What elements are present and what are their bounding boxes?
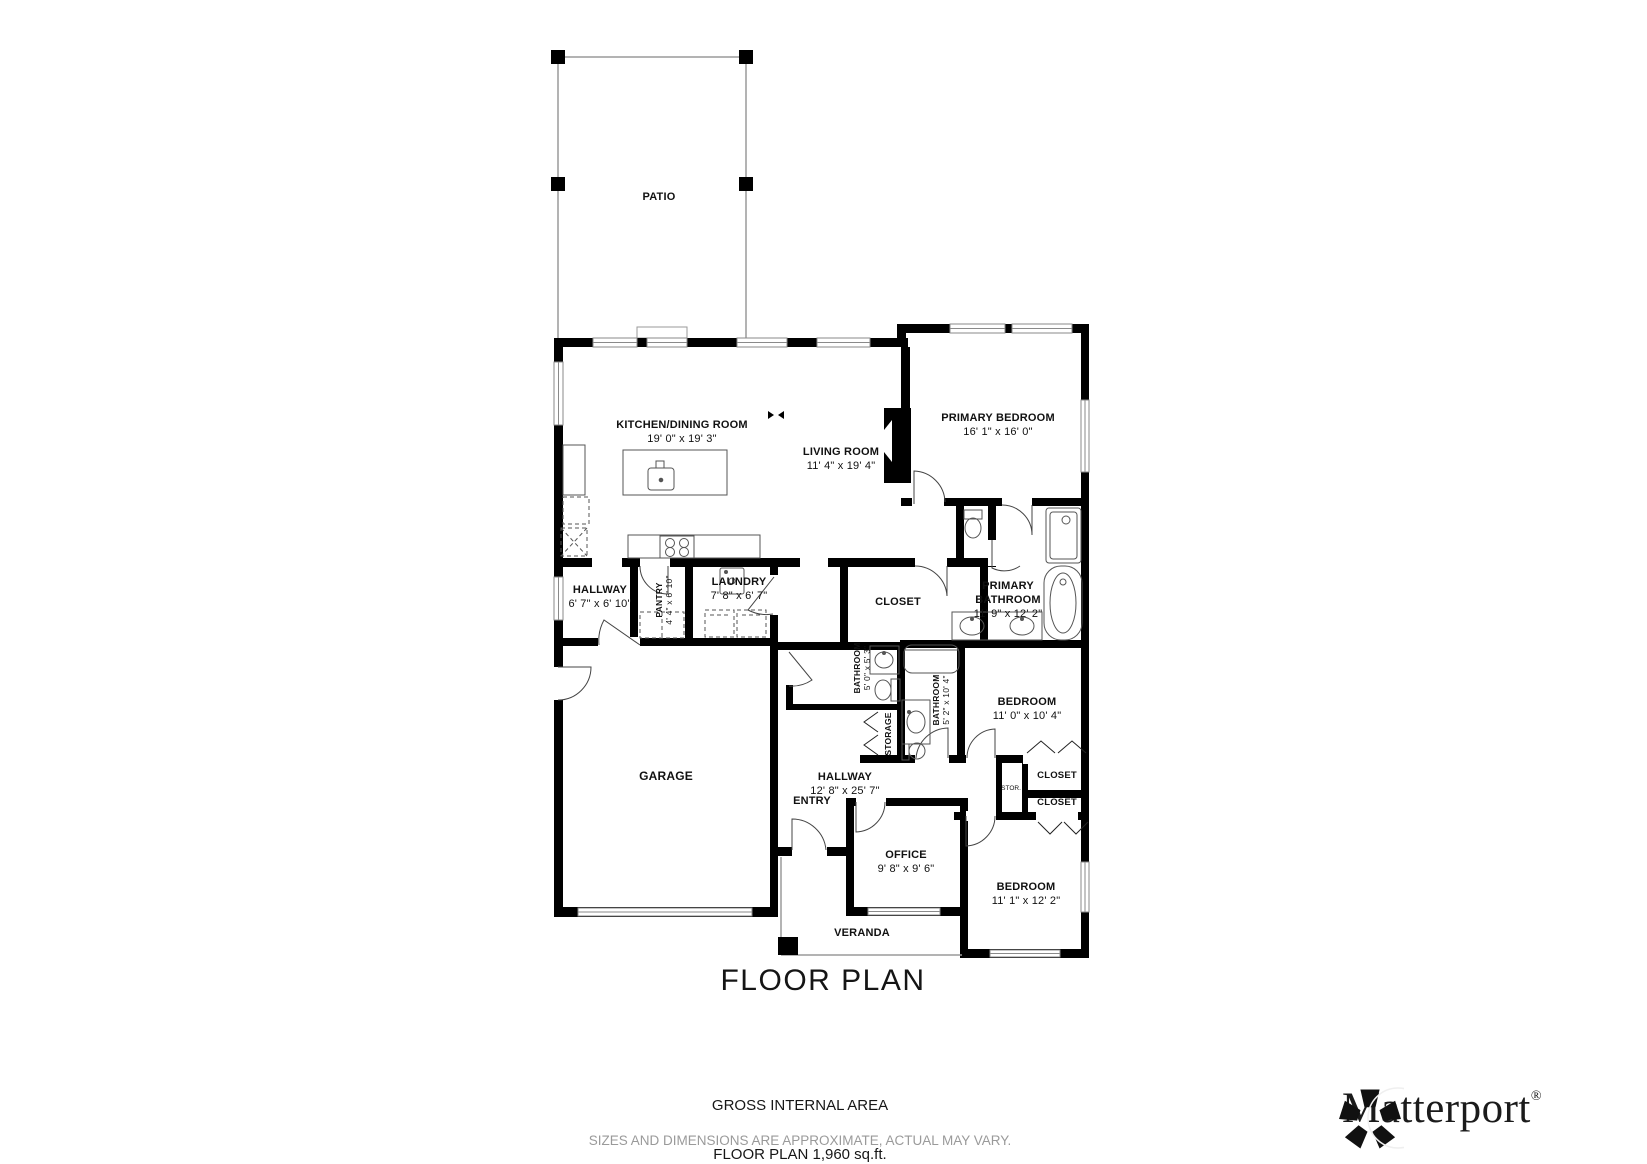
room-label-storage: STORAGE bbox=[883, 712, 893, 755]
room-name: BEDROOM bbox=[993, 695, 1062, 709]
room-name: PANTRY bbox=[654, 575, 664, 624]
room-label-primary-bathroom: PRIMARY BATHROOM 11' 9" x 12' 2" bbox=[955, 579, 1061, 621]
room-name: PRIMARY BATHROOM bbox=[955, 579, 1061, 607]
room-dimensions: 11' 4" x 19' 4" bbox=[803, 459, 879, 473]
room-name: OFFICE bbox=[878, 848, 935, 862]
room-label-closet-1: CLOSET bbox=[1037, 769, 1077, 783]
room-label-living: LIVING ROOM 11' 4" x 19' 4" bbox=[803, 445, 879, 473]
stove-icon bbox=[628, 535, 760, 558]
room-label-veranda: VERANDA bbox=[834, 926, 890, 940]
washer-dryer-icon bbox=[705, 610, 766, 637]
room-name: BATHROOM bbox=[931, 674, 941, 725]
room-name: ENTRY bbox=[793, 794, 831, 808]
room-name: LAUNDRY bbox=[711, 575, 768, 589]
opening-marker-icon bbox=[768, 411, 784, 419]
appliance-icon bbox=[561, 528, 587, 556]
room-name: LIVING ROOM bbox=[803, 445, 879, 459]
floor-plan-page: PATIO KITCHEN/DINING ROOM 19' 0" x 19' 3… bbox=[0, 0, 1647, 1164]
room-name: CLOSET bbox=[1037, 769, 1077, 783]
room-name: STORAGE bbox=[883, 712, 893, 755]
room-name: BATHROOM bbox=[852, 642, 862, 693]
room-label-patio: PATIO bbox=[643, 190, 676, 204]
room-name: VERANDA bbox=[834, 926, 890, 940]
room-label-garage: GARAGE bbox=[639, 769, 693, 783]
bathtub-icon bbox=[904, 645, 959, 673]
garage-door bbox=[578, 908, 752, 916]
gross-internal-area-line: GROSS INTERNAL AREA bbox=[527, 1098, 1073, 1114]
room-label-entry: ENTRY bbox=[793, 794, 831, 808]
room-label-bedroom-mid: BEDROOM 11' 0" x 10' 4" bbox=[993, 695, 1062, 723]
room-dimensions: 4' 4" x 6' 10" bbox=[664, 575, 674, 624]
toilet-icon bbox=[875, 679, 900, 701]
registered-trademark-icon: ® bbox=[1531, 1089, 1542, 1104]
patio-step bbox=[637, 327, 687, 338]
matterport-logo: Matterport® bbox=[1336, 1084, 1542, 1133]
kitchen-island-icon bbox=[623, 450, 727, 495]
room-label-hallway-small: HALLWAY 6' 7" x 6' 10" bbox=[568, 583, 631, 611]
patio-posts bbox=[551, 50, 753, 191]
room-name: CLOSET bbox=[875, 595, 921, 609]
room-label-bathroom-hall: BATHROOM 5' 2" x 10' 4" bbox=[931, 674, 951, 725]
room-label-laundry: LAUNDRY 7' 8" x 6' 7" bbox=[711, 575, 768, 603]
room-name: HALLWAY bbox=[810, 770, 879, 784]
shower-icon bbox=[1046, 508, 1081, 563]
room-dimensions: 16' 1" x 16' 0" bbox=[941, 425, 1055, 439]
room-label-closet-primary: CLOSET bbox=[875, 595, 921, 609]
room-dimensions: 11' 1" x 12' 2" bbox=[992, 894, 1061, 908]
floor-plan-area-line: FLOOR PLAN 1,960 sq.ft. bbox=[527, 1147, 1073, 1163]
sink-icon bbox=[870, 646, 899, 674]
room-dimensions: 11' 9" x 12' 2" bbox=[955, 607, 1061, 621]
room-dimensions: 11' 0" x 10' 4" bbox=[993, 709, 1062, 723]
room-dimensions: 9' 8" x 9' 6" bbox=[878, 862, 935, 876]
room-dimensions: 7' 8" x 6' 7" bbox=[711, 589, 768, 603]
room-name: PATIO bbox=[643, 190, 676, 204]
room-name: GARAGE bbox=[639, 769, 693, 783]
matterport-pinwheel-icon bbox=[1336, 1084, 1404, 1152]
room-name: KITCHEN/DINING ROOM bbox=[616, 418, 748, 432]
room-name: STOR. bbox=[1001, 785, 1021, 792]
room-name: PRIMARY BEDROOM bbox=[941, 411, 1055, 425]
room-label-office: OFFICE 9' 8" x 9' 6" bbox=[878, 848, 935, 876]
room-label-bedroom-bottom: BEDROOM 11' 1" x 12' 2" bbox=[992, 880, 1061, 908]
footer-area-summary: GROSS INTERNAL AREA FLOOR PLAN 1,960 sq.… bbox=[527, 1066, 1073, 1164]
disclaimer-text: SIZES AND DIMENSIONS ARE APPROXIMATE, AC… bbox=[589, 1133, 1012, 1148]
room-label-closet-2: CLOSET bbox=[1037, 796, 1077, 810]
room-name: BEDROOM bbox=[992, 880, 1061, 894]
room-label-pantry: PANTRY 4' 4" x 6' 10" bbox=[654, 575, 674, 624]
room-label-kitchen-dining: KITCHEN/DINING ROOM 19' 0" x 19' 3" bbox=[616, 418, 748, 446]
room-dimensions: 6' 7" x 6' 10" bbox=[568, 597, 631, 611]
room-dimensions: 5' 0" x 5' 3" bbox=[862, 642, 872, 693]
room-dimensions: 5' 2" x 10' 4" bbox=[941, 674, 951, 725]
room-name: HALLWAY bbox=[568, 583, 631, 597]
toilet-icon bbox=[964, 510, 982, 538]
page-title: FLOOR PLAN bbox=[720, 964, 925, 998]
room-label-primary-bedroom: PRIMARY BEDROOM 16' 1" x 16' 0" bbox=[941, 411, 1055, 439]
room-dimensions: 19' 0" x 19' 3" bbox=[616, 432, 748, 446]
room-label-stor-small: STOR. bbox=[1001, 782, 1021, 796]
room-name: CLOSET bbox=[1037, 796, 1077, 810]
room-label-bathroom-small: BATHROOM 5' 0" x 5' 3" bbox=[852, 642, 872, 693]
